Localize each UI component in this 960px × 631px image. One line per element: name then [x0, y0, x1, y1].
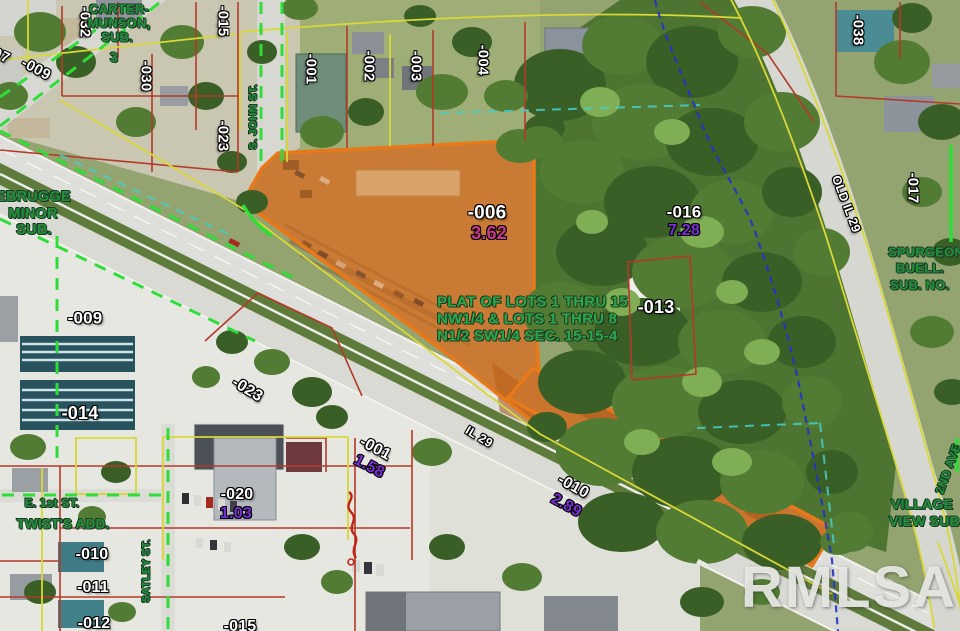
acreage-label-016: 7.28	[668, 223, 700, 239]
parcel-label-014: -014	[62, 404, 99, 422]
subdivision-village-view-line2: VIEW SUB	[889, 514, 960, 528]
subdivision-spurgeon-line3: SUB. NO.	[890, 279, 949, 292]
acreage-label-020: 1.03	[220, 506, 252, 522]
aerial-parcel-map[interactable]: -007 -009 -032 -030 -015 -023 -001 -002 …	[0, 0, 960, 631]
parcel-label-012: -012	[78, 616, 111, 631]
parcel-label-006: -006	[468, 204, 507, 223]
street-label-s-john: S. JOHN ST.	[249, 84, 260, 149]
subdivision-hiebrugge-line2: MINOR	[8, 207, 57, 222]
street-label-satley: SATLEY ST.	[142, 539, 153, 602]
subdivision-carter-munson-line3: SUB.	[101, 31, 133, 44]
parcel-label-003: -003	[409, 51, 424, 82]
subdivision-spurgeon-line2: BUELL.	[896, 262, 944, 275]
parcel-label-004: -004	[476, 45, 491, 76]
parcel-label-020: -020	[221, 487, 254, 503]
rmlsa-watermark: RMLSA	[741, 559, 957, 617]
subdivision-spurgeon-line1: SPURGEON	[888, 246, 960, 259]
subdivision-carter-munson-line2: MUNSON,	[88, 17, 151, 30]
plat-note-line2: NW1/4 & LOTS 1 THRU 8	[437, 312, 617, 327]
parcel-label-009-w: -009	[68, 310, 103, 327]
subdivision-twists: TWIST'S ADD.	[17, 517, 110, 531]
parcel-label-011: -011	[77, 580, 109, 596]
parcel-label-030: -030	[139, 61, 154, 92]
parcel-label-015-n: -015	[216, 6, 231, 37]
parcel-label-015-s: -015	[224, 619, 257, 631]
lot-number-label: 3	[110, 50, 118, 64]
parcel-label-023-n: -023	[216, 121, 231, 152]
parcel-label-016: -016	[667, 204, 702, 221]
parcel-label-013: -013	[638, 298, 675, 316]
parcel-label-010-s: -010	[76, 547, 109, 563]
parcel-label-038: -038	[851, 15, 866, 46]
subdivision-hiebrugge-line1: HIEBRUGGE	[0, 190, 71, 205]
street-label-e-1st: E. 1st ST.	[25, 497, 80, 509]
subdivision-hiebrugge-line3: SUB.	[16, 223, 51, 238]
subdivision-carter-munson-line1: CARTER-	[89, 3, 149, 16]
parcel-label-017: -017	[906, 173, 921, 204]
subdivision-village-view-line1: VILLAGE	[891, 497, 953, 511]
parcel-label-002: -002	[362, 51, 377, 82]
parcel-label-001-n: -001	[304, 54, 319, 85]
acreage-label-006: 3.62	[471, 224, 507, 242]
plat-note-line1: PLAT OF LOTS 1 THRU 15	[437, 295, 628, 310]
plat-note-line3: N1/2 SW1/4 SEC. 15-15-4	[437, 329, 618, 344]
